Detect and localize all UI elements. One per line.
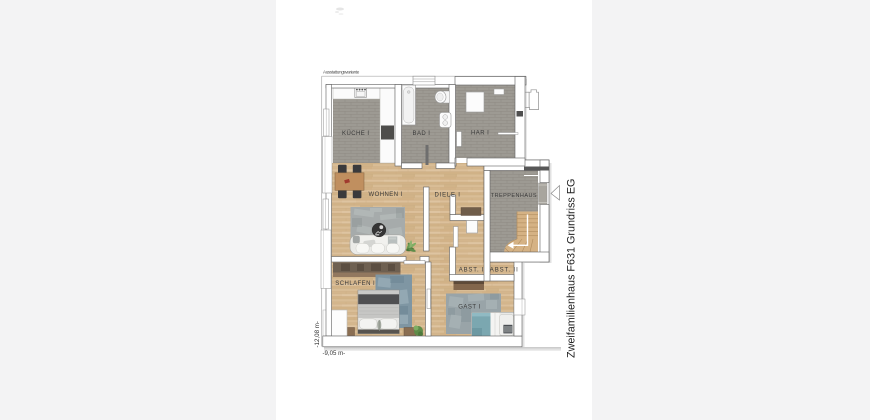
svg-text:GAST I: GAST I (458, 305, 480, 311)
svg-text:ABST. I: ABST. I (459, 268, 485, 274)
svg-text:DIELE I: DIELE I (435, 193, 461, 199)
svg-text:Zweifamilienhaus F631 Grundris: Zweifamilienhaus F631 Grundriss EG (566, 179, 578, 358)
svg-text:SCHLAFEN I: SCHLAFEN I (335, 281, 375, 287)
svg-text:TREPPENHAUS: TREPPENHAUS (491, 193, 537, 199)
svg-text:KÜCHE I: KÜCHE I (342, 130, 370, 137)
svg-text:BAD I: BAD I (413, 131, 431, 137)
svg-text:ABST. II: ABST. II (490, 268, 519, 274)
svg-text:-12,08 m-: -12,08 m- (314, 321, 321, 347)
svg-text:HAR I: HAR I (471, 131, 489, 137)
svg-text:Ausstattungsvariante: Ausstattungsvariante (323, 70, 360, 75)
svg-text:WOHNEN I: WOHNEN I (369, 192, 403, 198)
svg-text:-9,05 m-: -9,05 m- (323, 350, 346, 357)
